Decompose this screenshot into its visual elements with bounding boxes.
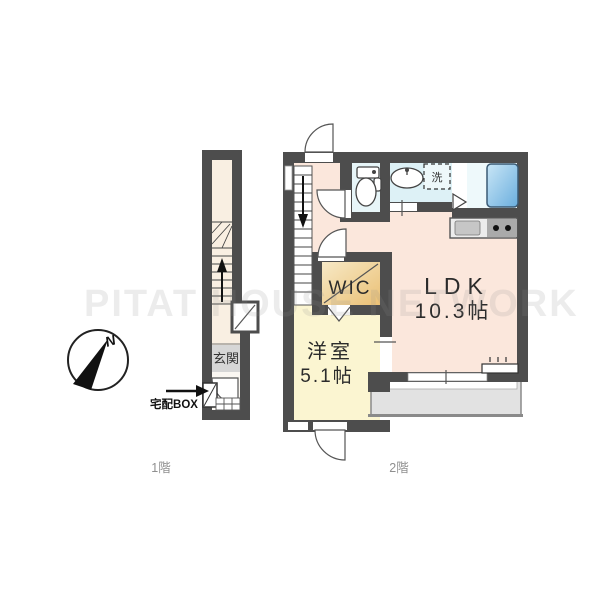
floor1-caption: 1階 bbox=[151, 460, 171, 475]
entry-steps bbox=[216, 398, 240, 410]
delivery-box-icon bbox=[203, 383, 217, 407]
stove-icon bbox=[487, 219, 517, 237]
compass-icon: N bbox=[68, 330, 128, 390]
bathtub-icon bbox=[487, 164, 518, 207]
watermark-text: PITAT HOUSE NETWORK bbox=[84, 283, 579, 325]
entry-door-arc bbox=[305, 124, 333, 152]
floorplan-page: LDK 10.3帖 WIC 洋室 5.1帖 洗 bbox=[0, 0, 600, 600]
kitchen-counter bbox=[450, 218, 517, 238]
delivery-box-label: 宅配BOX bbox=[150, 397, 198, 411]
bedroom-door-arc bbox=[315, 430, 345, 460]
washer-label: 洗 bbox=[432, 171, 443, 184]
entrance-label: 玄関 bbox=[213, 351, 239, 366]
floor2-caption: 2階 bbox=[389, 460, 409, 475]
bedroom-size-label: 5.1帖 bbox=[300, 365, 353, 387]
bedroom-label: 洋室 bbox=[307, 340, 353, 363]
sink-icon bbox=[391, 168, 423, 188]
floorplan-drawing: LDK 10.3帖 WIC 洋室 5.1帖 洗 bbox=[0, 0, 600, 600]
kitchen-sink-icon bbox=[455, 221, 480, 235]
